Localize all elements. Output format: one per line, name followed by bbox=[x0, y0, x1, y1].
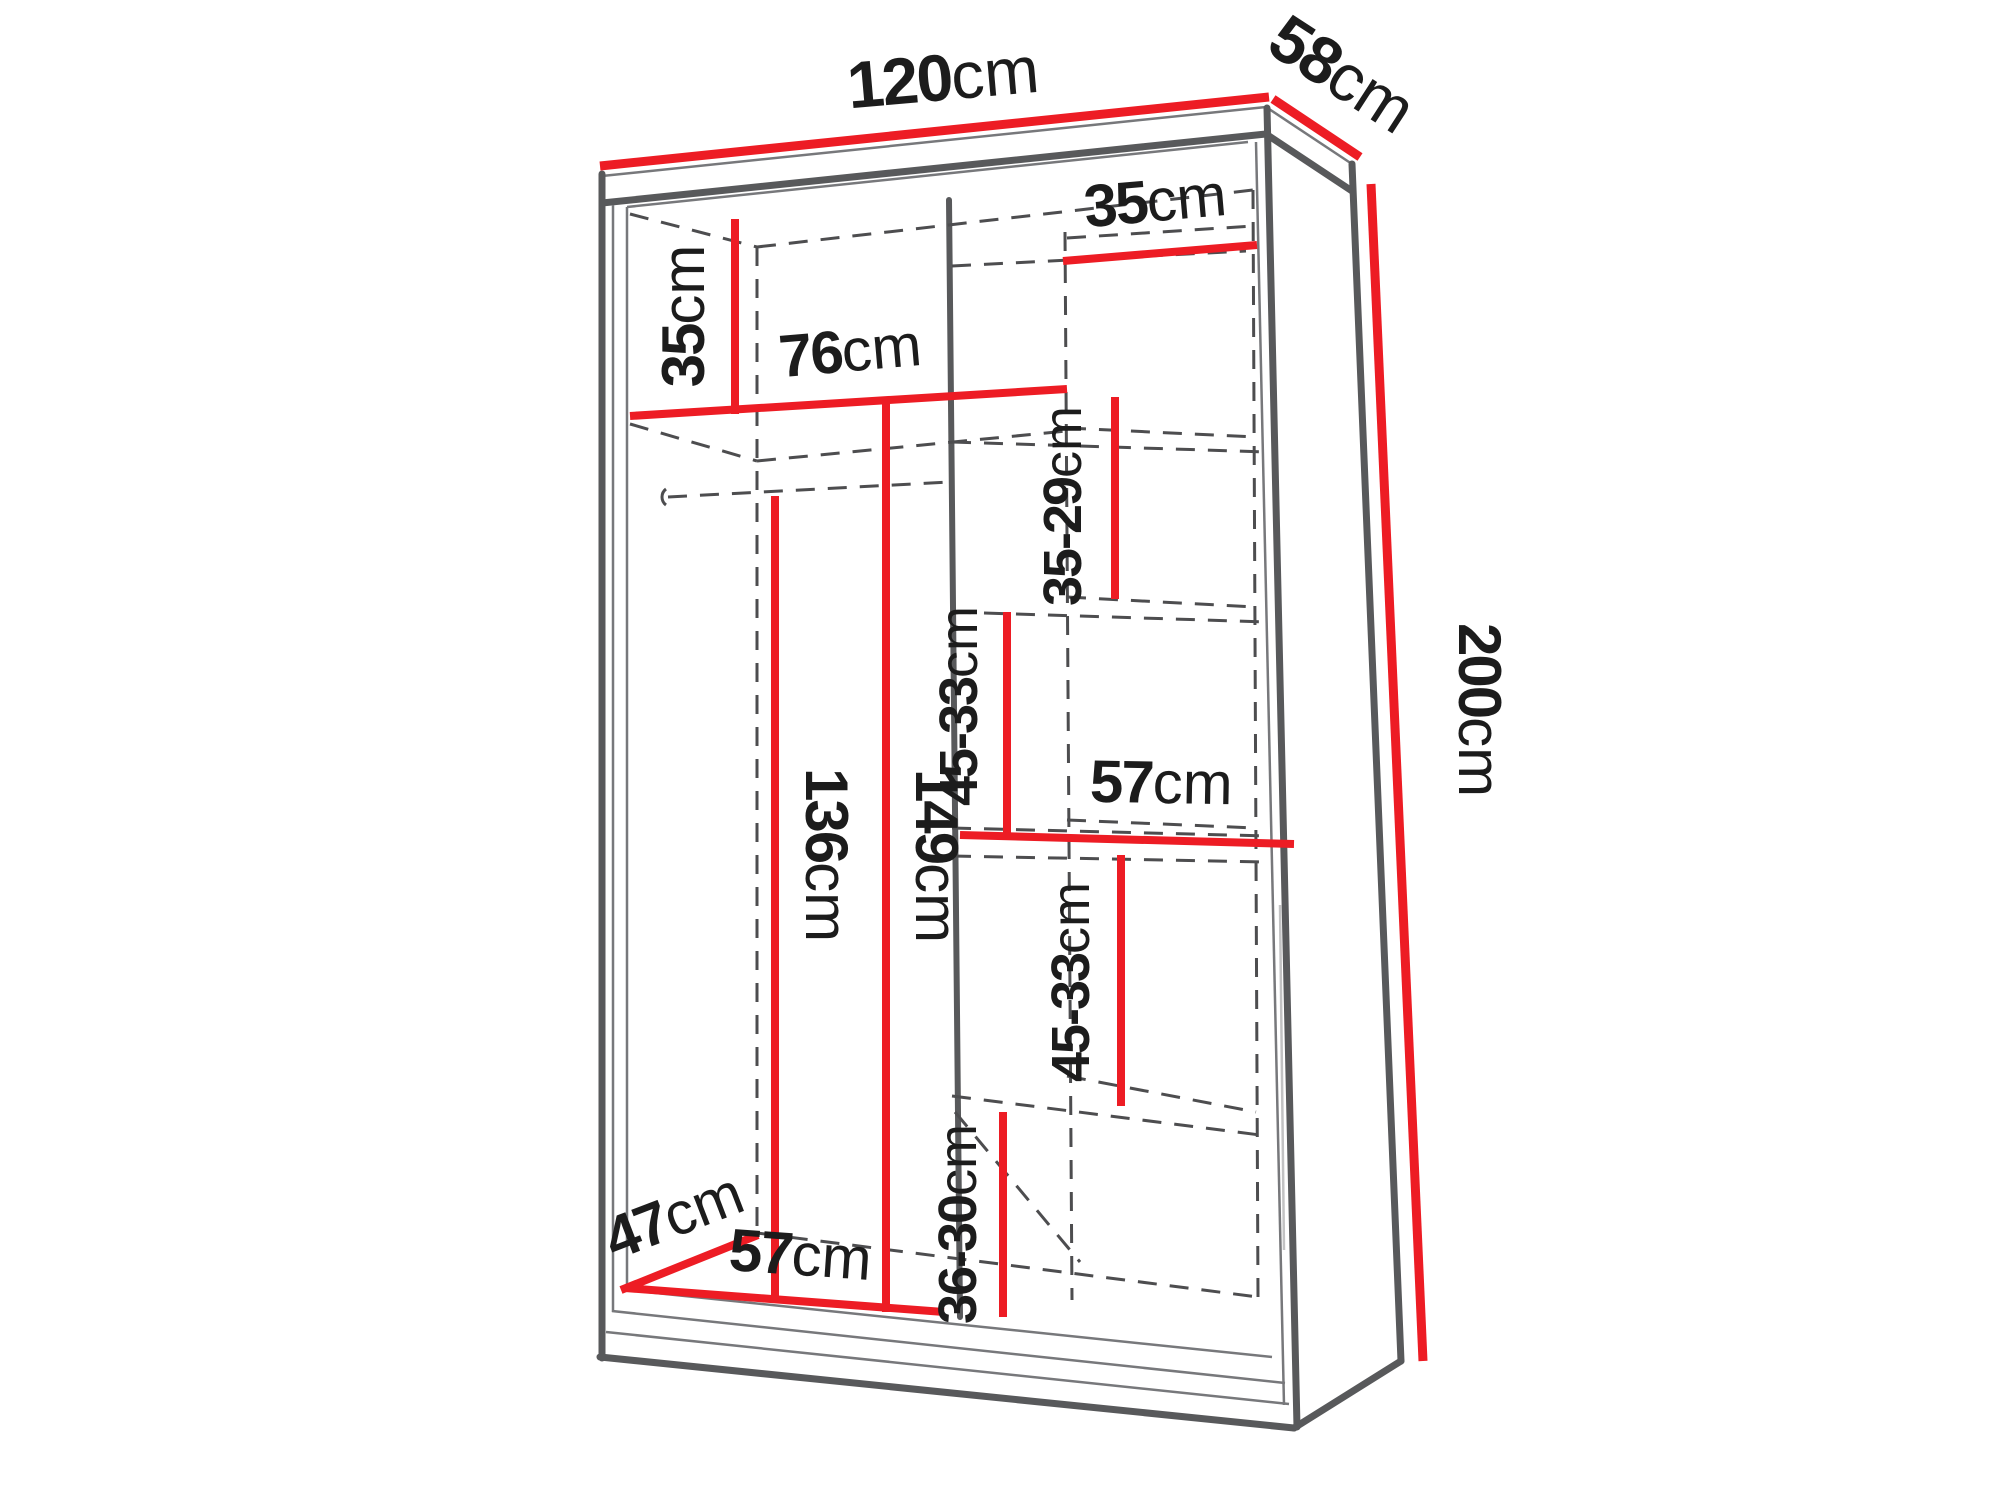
label-sec2-unit: cm bbox=[929, 606, 989, 678]
label-149-unit: cm bbox=[903, 863, 970, 943]
left-shelf-back-edge bbox=[757, 431, 1067, 461]
label-sec3-unit: cm bbox=[1041, 882, 1101, 954]
shelf-d-back bbox=[1067, 820, 1256, 828]
shelf-b-front bbox=[952, 442, 1268, 452]
label-57b-unit: cm bbox=[789, 1221, 873, 1293]
shelf-c-front bbox=[952, 612, 1268, 622]
back-right-corner bbox=[1253, 190, 1258, 1297]
label-sec1-unit: cm bbox=[1033, 406, 1093, 478]
wardrobe-dimension-diagram: 120cm 58cm 200cm 35cm 76cm 35cm 35-29cm … bbox=[0, 0, 2000, 1500]
label-height-unit: cm bbox=[1446, 717, 1513, 797]
label-width-120cm: 120cm bbox=[844, 32, 1042, 122]
label-right-sec3-45-33cm: 45-33cm bbox=[1041, 882, 1101, 1082]
label-right-shelf-57cm: 57cm bbox=[1089, 748, 1233, 817]
bottom-right-edge bbox=[1294, 1361, 1401, 1428]
label-rail-height-136cm: 136cm bbox=[793, 768, 860, 942]
label-cubby-value: 35 bbox=[650, 324, 717, 387]
label-shelf76-value: 76 bbox=[776, 318, 845, 390]
label-136-unit: cm bbox=[793, 862, 860, 942]
label-sec1-value: 35-29 bbox=[1033, 477, 1093, 606]
label-sec4-unit: cm bbox=[928, 1124, 988, 1196]
label-width-unit: cm bbox=[948, 32, 1042, 113]
label-height-200cm: 200cm bbox=[1446, 623, 1513, 797]
label-depth-58cm: 58cm bbox=[1256, 0, 1428, 148]
left-shelf-depth-edge bbox=[630, 424, 757, 461]
label-shelf57-unit: cm bbox=[1152, 749, 1233, 817]
label-top-left-cubby-35cm: 35cm bbox=[650, 245, 717, 388]
label-136-value: 136 bbox=[793, 768, 860, 863]
label-shelf57-value: 57 bbox=[1089, 748, 1153, 816]
hanging-rail-bracket bbox=[662, 489, 666, 505]
label-sec3-value: 45-33 bbox=[1041, 953, 1101, 1082]
dim-line-leftcol-57 bbox=[625, 1288, 944, 1312]
right-front-edge bbox=[1267, 108, 1297, 1427]
label-shelf-width-76cm: 76cm bbox=[776, 311, 924, 390]
label-right-col-35cm: 35cm bbox=[1081, 161, 1229, 240]
diagram-canvas: 120cm 58cm 200cm 35cm 76cm 35cm 35-29cm … bbox=[0, 0, 2000, 1500]
label-right-sec1-35-29cm: 35-29cm bbox=[1033, 406, 1093, 606]
label-rightcol-value: 35 bbox=[1081, 168, 1150, 240]
hanging-rail bbox=[668, 482, 950, 497]
label-left-col-57cm: 57cm bbox=[727, 1216, 874, 1293]
label-57b-value: 57 bbox=[727, 1216, 794, 1287]
shelf-d-underside bbox=[952, 856, 1268, 862]
label-height-value: 200 bbox=[1446, 623, 1513, 717]
label-width-value: 120 bbox=[844, 40, 954, 123]
label-right-sec4-36-30cm: 36-30cm bbox=[928, 1124, 988, 1324]
label-sec4-value: 36-30 bbox=[928, 1196, 988, 1324]
label-shelf76-unit: cm bbox=[839, 311, 925, 385]
label-cubby-unit: cm bbox=[650, 245, 717, 325]
dim-line-shelf-76 bbox=[630, 389, 1067, 416]
label-149-value: 149 bbox=[903, 769, 970, 864]
label-rightcol-unit: cm bbox=[1144, 161, 1230, 235]
dim-line-rightcol-35 bbox=[1063, 245, 1257, 261]
label-left-sec-height-149cm: 149cm bbox=[903, 769, 970, 943]
shelf-b-back bbox=[1067, 428, 1256, 437]
shelf-c-back bbox=[1067, 597, 1256, 607]
